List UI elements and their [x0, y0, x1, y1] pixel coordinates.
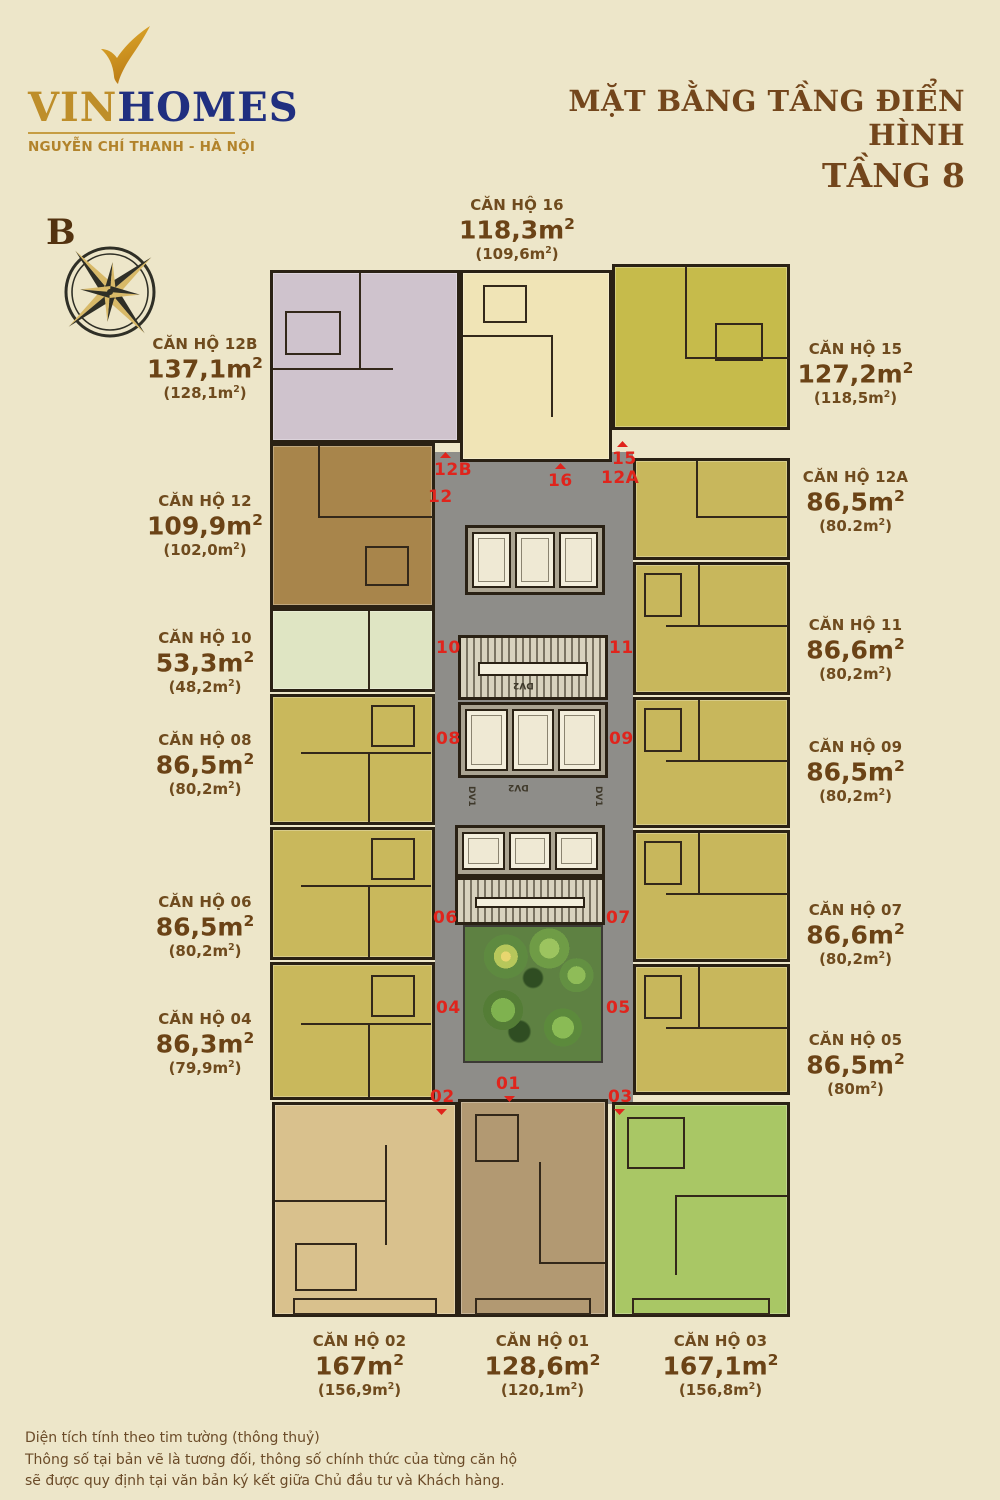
balcony — [632, 1298, 770, 1315]
interior-wall — [698, 700, 700, 760]
room-outline — [715, 323, 763, 361]
unit-marker-05: 05 — [606, 998, 631, 1018]
core-label-dv1: DV1 — [593, 786, 603, 807]
interior-wall — [698, 565, 700, 625]
apartment-name: CĂN HỘ 11 — [768, 616, 943, 634]
elevator-bank — [455, 825, 605, 877]
apartment-area-gross: 118,3m2 — [437, 215, 597, 244]
unit-marker-08: 08 — [436, 729, 461, 749]
interior-wall — [318, 446, 320, 518]
entry-tick — [617, 441, 628, 447]
apartment-label-09: CĂN HỘ 09 86,5m2 (80,2m2) — [768, 738, 943, 805]
unit-marker-10: 10 — [436, 638, 461, 658]
apartment-label-03: CĂN HỘ 03 167,1m2 (156,8m2) — [633, 1332, 808, 1399]
apartment-name: CĂN HỘ 16 — [437, 196, 597, 214]
apartment-area-gross: 86,5m2 — [115, 912, 295, 941]
elevator-cell — [515, 532, 554, 588]
unit-marker-01: 01 — [496, 1074, 521, 1094]
interior-wall — [368, 611, 370, 689]
elevator-cell — [462, 832, 505, 870]
elevator-cell — [559, 532, 598, 588]
apartment-unit-01 — [458, 1099, 608, 1317]
unit-marker-02: 02 — [430, 1087, 455, 1107]
apartment-label-12: CĂN HỘ 12 109,9m2 (102,0m2) — [115, 492, 295, 559]
apartment-area-gross: 86,5m2 — [768, 1050, 943, 1079]
apartment-name: CĂN HỘ 12B — [115, 335, 295, 353]
elevator-bank — [458, 702, 608, 778]
apartment-area-net: (80,2m2) — [768, 665, 943, 683]
interior-wall — [463, 335, 553, 337]
room-outline — [483, 285, 527, 323]
room-outline — [365, 546, 409, 586]
interior-wall — [301, 752, 431, 754]
logo-bird-icon — [100, 26, 152, 84]
floorplan-poster: VINHOMES NGUYỄN CHÍ THANH - HÀ NỘI MẶT B… — [0, 0, 1000, 1500]
apartment-label-06: CĂN HỘ 06 86,5m2 (80,2m2) — [115, 893, 295, 960]
courtyard-garden — [463, 925, 603, 1063]
apartment-name: CĂN HỘ 12 — [115, 492, 295, 510]
footer-note: Diện tích tính theo tim tường (thông thu… — [25, 1428, 517, 1493]
unit-marker-06: 06 — [433, 908, 458, 928]
brand-homes: HOMES — [117, 84, 298, 131]
unit-marker-16: 16 — [548, 471, 573, 491]
apartment-area-net: (80,2m2) — [768, 787, 943, 805]
interior-wall — [318, 516, 433, 518]
room-outline — [644, 841, 682, 885]
apartment-name: CĂN HỘ 07 — [768, 901, 943, 919]
room-outline — [627, 1117, 685, 1169]
stairwell — [455, 877, 605, 925]
apartment-area-gross: 86,5m2 — [768, 757, 943, 786]
core-label-dv2: DV2 — [508, 782, 529, 792]
apartment-area-gross: 53,3m2 — [115, 648, 295, 677]
apartment-label-01: CĂN HỘ 01 128,6m2 (120,1m2) — [455, 1332, 630, 1399]
unit-marker-12B: 12B — [434, 460, 472, 480]
apartment-name: CĂN HỘ 10 — [115, 629, 295, 647]
apartment-area-net: (80,2m2) — [768, 950, 943, 968]
apartment-name: CĂN HỘ 15 — [768, 340, 943, 358]
apartment-label-04: CĂN HỘ 04 86,3m2 (79,9m2) — [115, 1010, 295, 1077]
apartment-label-12A: CĂN HỘ 12A 86,5m2 (80.2m2) — [768, 468, 943, 535]
elevator-bank — [465, 525, 605, 595]
apartment-name: CĂN HỘ 06 — [115, 893, 295, 911]
apartment-unit-16 — [460, 270, 612, 462]
elevator-cell — [509, 832, 552, 870]
unit-marker-04: 04 — [436, 998, 461, 1018]
apartment-label-10: CĂN HỘ 10 53,3m2 (48,2m2) — [115, 629, 295, 696]
interior-wall — [696, 461, 698, 516]
apartment-name: CĂN HỘ 03 — [633, 1332, 808, 1350]
unit-marker-09: 09 — [609, 729, 634, 749]
apartment-area-gross: 167,1m2 — [633, 1351, 808, 1380]
apartment-name: CĂN HỘ 01 — [455, 1332, 630, 1350]
apartment-area-net: (48,2m2) — [115, 678, 295, 696]
interior-wall — [675, 1195, 677, 1275]
apartment-area-net: (79,9m2) — [115, 1059, 295, 1077]
room-outline — [371, 975, 415, 1017]
footer-line-1: Diện tích tính theo tim tường (thông thu… — [25, 1428, 517, 1450]
stair-landing — [475, 897, 584, 909]
elevator-cell — [558, 709, 601, 771]
balcony — [475, 1298, 590, 1315]
unit-marker-03: 03 — [608, 1087, 633, 1107]
interior-wall — [685, 267, 687, 357]
apartment-area-net: (80,2m2) — [115, 780, 295, 798]
apartment-area-net: (80,2m2) — [115, 942, 295, 960]
apartment-area-gross: 137,1m2 — [115, 354, 295, 383]
balcony — [293, 1298, 437, 1315]
apartment-area-gross: 86,6m2 — [768, 920, 943, 949]
apartment-area-gross: 86,6m2 — [768, 635, 943, 664]
apartment-area-gross: 86,5m2 — [115, 750, 295, 779]
interior-wall — [359, 273, 361, 368]
interior-wall — [666, 1027, 788, 1029]
apartment-area-gross: 86,3m2 — [115, 1029, 295, 1058]
apartment-area-net: (118,5m2) — [768, 389, 943, 407]
apartment-label-08: CĂN HỘ 08 86,5m2 (80,2m2) — [115, 731, 295, 798]
apartment-label-05: CĂN HỘ 05 86,5m2 (80m2) — [768, 1031, 943, 1098]
interior-wall — [301, 885, 431, 887]
room-outline — [644, 708, 682, 752]
apartment-area-gross: 127,2m2 — [768, 359, 943, 388]
apartment-name: CĂN HỘ 12A — [768, 468, 943, 486]
apartment-area-net: (109,6m2) — [437, 245, 597, 263]
apartment-area-net: (80.2m2) — [768, 517, 943, 535]
interior-wall — [698, 967, 700, 1027]
floor-plan: DV2 DV2 DV1 DV1 12B 12 16 15 12A 10 11 0… — [268, 262, 808, 1320]
unit-marker-12A: 12A — [601, 468, 639, 488]
apartment-unit-15 — [612, 264, 790, 430]
apartment-label-11: CĂN HỘ 11 86,6m2 (80,2m2) — [768, 616, 943, 683]
apartment-area-net: (156,9m2) — [272, 1381, 447, 1399]
unit-marker-11: 11 — [609, 638, 634, 658]
stair-landing — [478, 662, 587, 677]
brand-rule — [28, 132, 235, 134]
apartment-area-net: (102,0m2) — [115, 541, 295, 559]
interior-wall — [368, 885, 370, 957]
apartment-area-net: (120,1m2) — [455, 1381, 630, 1399]
core-label-dv1: DV1 — [466, 786, 476, 807]
apartment-unit-12B — [270, 270, 460, 443]
apartment-label-16: CĂN HỘ 16 118,3m2 (109,6m2) — [437, 196, 597, 263]
interior-wall — [368, 752, 370, 822]
apartment-area-net: (156,8m2) — [633, 1381, 808, 1399]
unit-marker-12: 12 — [428, 487, 453, 507]
compass-rose-icon — [54, 236, 166, 348]
brand-vin: VIN — [28, 84, 117, 131]
elevator-cell — [512, 709, 555, 771]
elevator-cell — [555, 832, 598, 870]
apartment-unit-07 — [633, 830, 790, 962]
apartment-unit-12A — [633, 458, 790, 560]
interior-wall — [385, 1145, 387, 1245]
apartment-area-gross: 167m2 — [272, 1351, 447, 1380]
title-line-2: TẦNG 8 — [470, 156, 965, 195]
brand-subtitle: NGUYỄN CHÍ THANH - HÀ NỘI — [28, 139, 255, 155]
apartment-area-gross: 109,9m2 — [115, 511, 295, 540]
room-outline — [295, 1243, 357, 1291]
apartment-unit-09 — [633, 697, 790, 828]
apartment-name: CĂN HỘ 04 — [115, 1010, 295, 1028]
apartment-label-02: CĂN HỘ 02 167m2 (156,9m2) — [272, 1332, 447, 1399]
apartment-label-15: CĂN HỘ 15 127,2m2 (118,5m2) — [768, 340, 943, 407]
interior-wall — [675, 1195, 787, 1197]
apartment-unit-03 — [612, 1102, 790, 1317]
interior-wall — [275, 1200, 385, 1202]
apartment-area-gross: 86,5m2 — [768, 487, 943, 516]
apartment-area-net: (80m2) — [768, 1080, 943, 1098]
interior-wall — [666, 893, 788, 895]
apartment-label-12B: CĂN HỘ 12B 137,1m2 (128,1m2) — [115, 335, 295, 402]
interior-wall — [539, 1262, 605, 1264]
apartment-unit-05 — [633, 964, 790, 1095]
elevator-cell — [465, 709, 508, 771]
room-outline — [371, 705, 415, 747]
elevator-cell — [472, 532, 511, 588]
interior-wall — [551, 335, 553, 417]
brand-name: VINHOMES — [28, 84, 299, 131]
page-title: MẶT BẰNG TẦNG ĐIỂN HÌNH TẦNG 8 — [470, 84, 965, 195]
apartment-area-gross: 128,6m2 — [455, 1351, 630, 1380]
footer-line-2: Thông số tại bản vẽ là tương đối, thông … — [25, 1450, 517, 1472]
apartment-name: CĂN HỘ 09 — [768, 738, 943, 756]
apartment-label-07: CĂN HỘ 07 86,6m2 (80,2m2) — [768, 901, 943, 968]
room-outline — [475, 1114, 519, 1162]
apartment-name: CĂN HỘ 05 — [768, 1031, 943, 1049]
interior-wall — [539, 1162, 541, 1264]
room-outline — [371, 838, 415, 880]
apartment-unit-02 — [272, 1102, 458, 1317]
unit-marker-15: 15 — [612, 449, 637, 469]
stairwell — [458, 635, 608, 700]
room-outline — [644, 975, 682, 1019]
apartment-area-net: (128,1m2) — [115, 384, 295, 402]
interior-wall — [301, 1023, 431, 1025]
apartment-name: CĂN HỘ 08 — [115, 731, 295, 749]
apartment-name: CĂN HỘ 02 — [272, 1332, 447, 1350]
unit-marker-07: 07 — [606, 908, 631, 928]
title-line-1: MẶT BẰNG TẦNG ĐIỂN HÌNH — [470, 84, 965, 152]
apartment-unit-11 — [633, 562, 790, 695]
interior-wall — [698, 833, 700, 893]
footer-line-3: sẽ được quy định tại văn bản ký kết giữa… — [25, 1471, 517, 1493]
room-outline — [644, 573, 682, 617]
core-label-dv2: DV2 — [513, 680, 534, 690]
interior-wall — [368, 1023, 370, 1097]
